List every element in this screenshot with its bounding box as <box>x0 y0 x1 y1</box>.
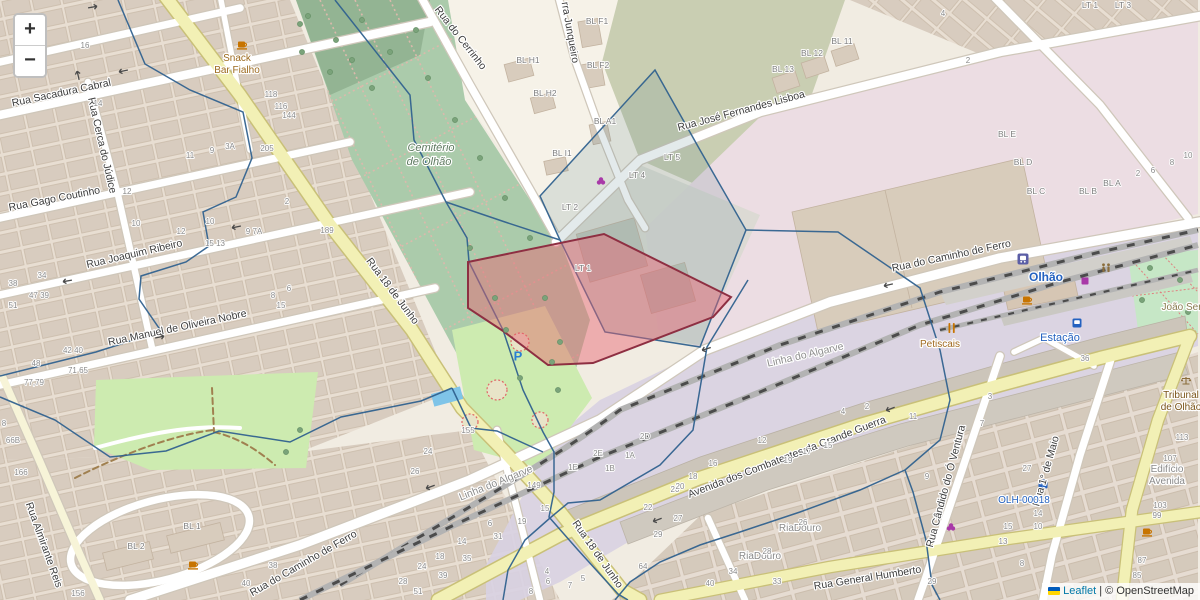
house-number: 9 <box>210 146 215 155</box>
house-number: 11 <box>186 151 195 160</box>
house-number: 10 <box>132 219 141 228</box>
house-number: 7 <box>568 581 573 590</box>
house-number: 38 <box>9 279 18 288</box>
block-label: LT 1 <box>1082 0 1098 10</box>
tree-icon <box>517 375 522 380</box>
tree-icon <box>1147 265 1152 270</box>
house-number: 12 <box>758 436 767 445</box>
poi-label: Snack <box>223 53 252 64</box>
tree-icon <box>549 359 554 364</box>
house-number: 8 <box>271 291 276 300</box>
tree-icon <box>327 69 332 74</box>
tree-icon <box>1139 297 1144 302</box>
house-number: 24 <box>424 447 433 456</box>
house-number: 71 65 <box>68 366 89 375</box>
house-number: 19 <box>784 456 793 465</box>
cafe-icon <box>1022 297 1032 305</box>
bus-stop-icon <box>1073 319 1082 328</box>
house-number: 1A <box>625 451 635 460</box>
poi-label: Avenida <box>1149 476 1185 487</box>
convenience-icon <box>1082 278 1089 285</box>
block-label: BL H2 <box>533 88 557 98</box>
house-number: 5 <box>581 574 586 583</box>
house-number: 189 <box>320 226 334 235</box>
attribution-separator: | <box>1099 585 1102 597</box>
house-number: 1B <box>605 464 615 473</box>
house-number: 15 <box>1004 522 1013 531</box>
poi-label: de Olhão <box>407 156 452 168</box>
house-number: 42 40 <box>63 346 84 355</box>
poi-label: Olhão <box>1029 270 1063 284</box>
tree-icon <box>425 75 430 80</box>
poi-label: Tribunal <box>1163 390 1199 401</box>
train-station-icon <box>1018 254 1029 265</box>
house-number: 116 <box>275 102 288 111</box>
block-label: BL 13 <box>772 64 794 74</box>
tree-icon <box>492 295 497 300</box>
tree-icon <box>503 327 508 332</box>
house-number: 16 <box>81 41 90 50</box>
house-number: 103 <box>1153 501 1167 510</box>
block-label: BL F2 <box>587 60 610 70</box>
tree-icon <box>369 85 374 90</box>
tree-icon <box>413 27 418 32</box>
tree-icon <box>1177 277 1182 282</box>
attribution: Leaflet | © OpenStreetMap <box>1042 583 1200 600</box>
house-number: 10 <box>1184 151 1193 160</box>
house-number: 26 <box>799 518 808 527</box>
house-number: 107 <box>1163 454 1177 463</box>
house-number: 10 <box>206 217 215 226</box>
house-number: 27 <box>1023 464 1032 473</box>
house-number: 10 <box>1034 522 1043 531</box>
house-number: 34 <box>38 271 47 280</box>
house-number: 18 <box>436 552 445 561</box>
house-number: 7 <box>980 419 985 428</box>
house-number: 51 <box>9 301 18 310</box>
house-number: 2 <box>966 56 971 65</box>
house-number: 18 <box>689 472 698 481</box>
house-number: 15 <box>541 504 550 513</box>
block-label: BL E <box>998 129 1016 139</box>
block-label: LT 5 <box>664 152 680 162</box>
block-label: LT 4 <box>629 170 645 180</box>
house-number: 12 <box>123 187 132 196</box>
tree-icon <box>333 37 338 42</box>
block-label: LT 1 <box>575 263 591 273</box>
house-number: 4 <box>941 9 946 18</box>
house-number: 2 <box>1136 169 1141 178</box>
poi-label: Edifício <box>1151 464 1184 475</box>
house-number: 1E <box>568 463 578 472</box>
poi-label: RiaDouro <box>739 551 782 562</box>
house-number: 6 <box>488 519 493 528</box>
house-number: 34 <box>729 567 738 576</box>
poi-label: Cemitério <box>407 142 454 154</box>
block-label: LT 3 <box>1115 0 1131 10</box>
house-number: 9 <box>925 472 930 481</box>
house-number: 6 <box>1151 166 1156 175</box>
house-number: 4 <box>545 567 550 576</box>
map-canvas[interactable]: P Rua Sacadura CabralRua Cerca do Júdice… <box>0 0 1200 600</box>
house-number: 36 <box>1081 354 1090 363</box>
tree-icon <box>387 49 392 54</box>
house-number: 205 <box>260 144 274 153</box>
tree-icon <box>542 295 547 300</box>
tree-icon <box>557 339 562 344</box>
house-number: 31 <box>494 532 503 541</box>
house-number: 40 <box>706 579 715 588</box>
parking-icon: P <box>514 349 523 364</box>
house-number: 2D <box>640 432 650 441</box>
poi-label: Bar Fialho <box>214 65 260 76</box>
house-number: 22 <box>644 503 653 512</box>
house-number: 14 <box>458 537 467 546</box>
house-number: 64 <box>639 562 648 571</box>
house-number: 16 <box>709 459 718 468</box>
house-number: 28 <box>399 577 408 586</box>
tree-icon <box>305 13 310 18</box>
house-number: 118 <box>265 90 278 99</box>
house-number: 15 <box>824 441 833 450</box>
house-number: 14 <box>1034 509 1043 518</box>
block-label: BL A <box>1103 178 1121 188</box>
house-number: 9 7A <box>246 227 263 236</box>
house-number: 8 <box>1020 559 1025 568</box>
tree-icon <box>297 427 302 432</box>
tree-icon <box>477 155 482 160</box>
house-number: 6 <box>546 577 551 586</box>
house-number: 20 <box>676 482 685 491</box>
house-number: 27 <box>674 514 683 523</box>
block-label: BL 2 <box>127 541 144 551</box>
poi-label: Estação <box>1040 332 1080 344</box>
tree-icon <box>527 235 532 240</box>
block-label: BL C <box>1027 186 1046 196</box>
tree-icon <box>349 57 354 62</box>
house-number: 14 <box>94 99 103 108</box>
house-number: 38 <box>269 561 278 570</box>
cafe-icon <box>188 562 198 570</box>
poi-label: de Olhão <box>1161 402 1200 413</box>
tree-icon <box>297 21 302 26</box>
house-number: 113 <box>1176 433 1189 442</box>
block-label: LT 2 <box>562 202 578 212</box>
tree-icon <box>467 245 472 250</box>
house-number: 77,79 <box>24 378 45 387</box>
house-number: 8 <box>529 587 534 596</box>
house-number: 66B <box>6 436 20 445</box>
cafe-icon <box>1142 529 1152 537</box>
house-number: 33 <box>773 577 782 586</box>
poi-label: Petiscais <box>920 339 960 350</box>
zoom-in-button[interactable]: + <box>15 15 45 45</box>
tree-icon <box>452 117 457 122</box>
block-label: BL 11 <box>831 36 853 46</box>
house-number: 149 <box>527 481 541 490</box>
house-number: 19 <box>518 517 527 526</box>
house-number: 2 <box>285 197 290 206</box>
house-number: 17 <box>803 447 812 456</box>
house-number: 8 <box>1170 158 1175 167</box>
tree-icon <box>555 387 560 392</box>
house-number: 48 <box>32 359 41 368</box>
house-number: 13 <box>999 537 1008 546</box>
block-label: BL I1 <box>552 148 572 158</box>
poi-label: João Serra <box>1162 302 1200 313</box>
house-number: 47 39 <box>29 291 50 300</box>
house-number: 6 <box>287 284 292 293</box>
house-number: 166 <box>14 468 28 477</box>
house-number: 155 <box>461 426 475 435</box>
house-number: 15 <box>277 301 286 310</box>
house-number: 2E <box>593 449 603 458</box>
zoom-out-button[interactable]: − <box>15 46 45 76</box>
house-number: 3 <box>988 392 993 401</box>
house-number: 87 <box>1138 556 1147 565</box>
block-label: BL H1 <box>516 55 540 65</box>
block-label: BL 1 <box>183 521 200 531</box>
ukraine-flag-icon <box>1048 587 1060 595</box>
house-number: 4 <box>841 407 846 416</box>
openstreetmap-link[interactable]: © OpenStreetMap <box>1105 585 1194 597</box>
tree-icon <box>359 17 364 22</box>
map-svg: P Rua Sacadura CabralRua Cerca do Júdice… <box>0 0 1200 600</box>
cafe-icon <box>237 42 247 50</box>
tree-icon <box>299 49 304 54</box>
house-number: 35 <box>463 554 472 563</box>
house-number: 26 <box>411 467 420 476</box>
house-number: 2 <box>865 402 870 411</box>
block-label: BL A1 <box>594 116 617 126</box>
house-number: 99 <box>1153 511 1162 520</box>
house-number: 156 <box>71 589 85 598</box>
block-label: BL B <box>1079 186 1097 196</box>
block-label: BL D <box>1014 157 1033 167</box>
tree-icon <box>502 195 507 200</box>
house-number: 11 <box>909 412 918 421</box>
leaflet-link[interactable]: Leaflet <box>1063 585 1096 597</box>
house-number: 85 <box>1133 571 1142 580</box>
svg-text:P: P <box>514 349 523 364</box>
house-number: 144 <box>282 111 296 120</box>
block-label: BL F1 <box>586 16 609 26</box>
house-number: 12 <box>177 227 186 236</box>
block-label: BL 12 <box>801 48 823 58</box>
zoom-control: + − <box>13 13 47 78</box>
house-number: 8 <box>2 419 7 428</box>
house-number: 3A <box>225 142 235 151</box>
house-number: 15 13 <box>205 239 226 248</box>
house-number: 24 <box>418 562 427 571</box>
poi-label: OLH-00018 <box>998 495 1050 506</box>
house-number: 39 <box>439 571 448 580</box>
house-number: 40 <box>242 579 251 588</box>
house-number: 51 <box>414 587 423 596</box>
house-number: 28 <box>763 547 772 556</box>
house-number: 29 <box>928 577 937 586</box>
tree-icon <box>283 449 288 454</box>
house-number: 29 <box>654 530 663 539</box>
